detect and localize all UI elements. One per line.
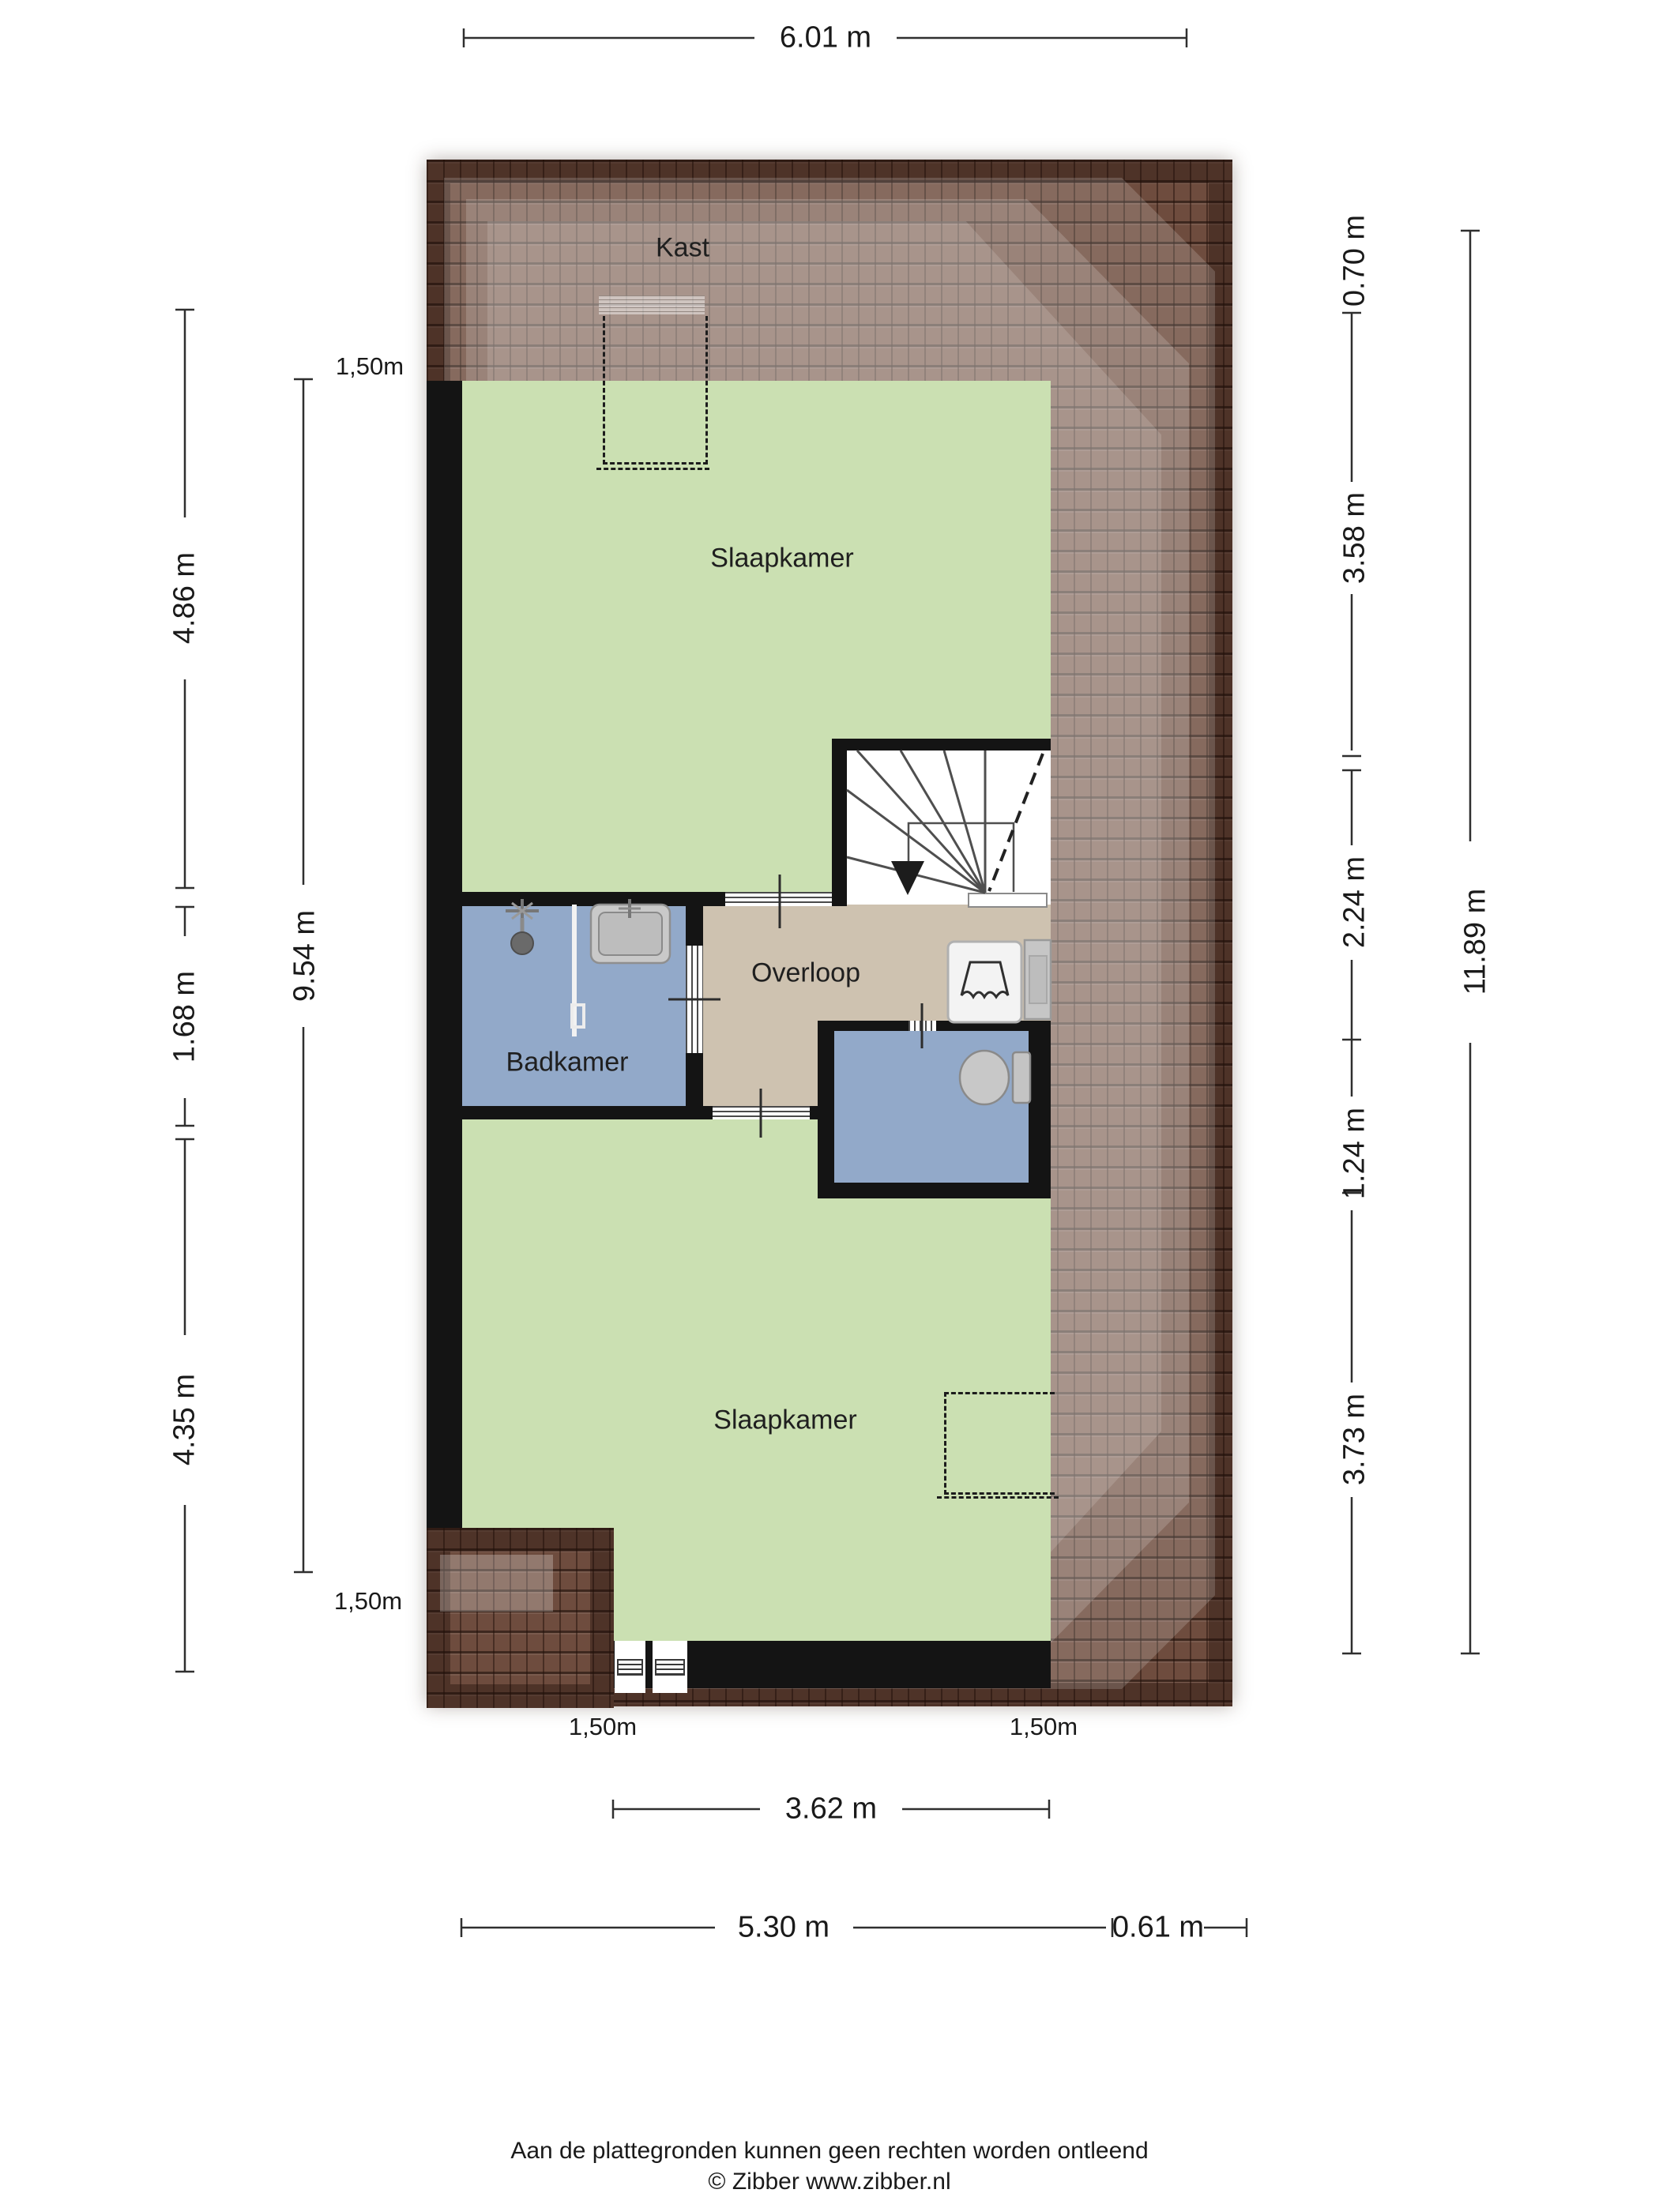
floorplan-canvas [427,160,1232,1706]
footer-credit: © Zibber www.zibber.nl [708,2169,950,2195]
wall-window-mullion [645,1641,653,1688]
room-label-bedroom-bottom: Slaapkamer [713,1405,856,1436]
door-bedroom-bottom [713,1106,810,1119]
dim-left-seg3: 4.35 m [168,1374,202,1465]
dim-right-outer-total: 11.89 m [1459,889,1493,995]
window-glyph [617,1659,643,1676]
roof-patch-bottom-left [427,1528,614,1708]
dim-right-seg1: 0.70 m [1338,215,1372,307]
window-icon [653,1641,687,1693]
dim-knee-bottom-right-width: 1,50m [1010,1713,1078,1741]
footer-disclaimer: Aan de plattegronden kunnen geen rechten… [510,2138,1148,2165]
stairwell [847,750,1051,905]
wall-left [427,381,462,1528]
door-toilet [908,1021,936,1031]
window-glyph [655,1659,685,1676]
door-bedroom-top [725,892,832,906]
wall-bedroom-bathroom [427,892,725,906]
dim-knee-bottom-left-width: 1,50m [569,1713,637,1741]
dim-right-seg5: 3.73 m [1338,1394,1372,1485]
wall-stairwell-top [832,739,1051,750]
skylight-hatch [599,295,705,314]
dim-right-seg3: 2.24 m [1338,856,1372,948]
room-label-bedroom-top: Slaapkamer [710,544,853,574]
floorplan-page: 6.01 m 1,50m 4.86 m 9.54 m 1.68 m 4.35 m… [0,0,1659,2212]
room-label-kast: Kast [656,233,709,264]
dashed-dormer-top-edge [596,468,709,470]
dashed-dormer-top [603,316,708,465]
wall-stairwell-left [832,739,847,906]
dim-left-seg1: 4.86 m [168,552,202,644]
dim-top-width: 6.01 m [780,21,871,55]
room-label-landing: Overloop [751,958,860,989]
dim-left-seg2: 1.68 m [168,971,202,1063]
dim-bottom-inner-width: 3.62 m [785,1793,877,1826]
window-icon [615,1641,645,1693]
room-label-bathroom: Badkamer [506,1048,629,1078]
door-bathroom [686,946,703,1053]
dim-bottom-right-width: 0.61 m [1112,1911,1204,1945]
room-toilet [834,1031,1029,1183]
dim-bottom-main-width: 5.30 m [738,1911,829,1945]
stairs-landing [968,893,1048,908]
dim-knee-top-left: 1,50m [336,352,404,381]
dashed-dormer-bottom [944,1392,1055,1495]
dim-knee-bottom-left: 1,50m [334,1587,402,1616]
dashed-dormer-bottom-edge [937,1496,1059,1499]
dim-left-inner-total: 9.54 m [288,910,322,1002]
dim-right-seg2: 3.58 m [1338,492,1372,584]
dim-right-seg4: 1.24 m [1338,1108,1372,1199]
